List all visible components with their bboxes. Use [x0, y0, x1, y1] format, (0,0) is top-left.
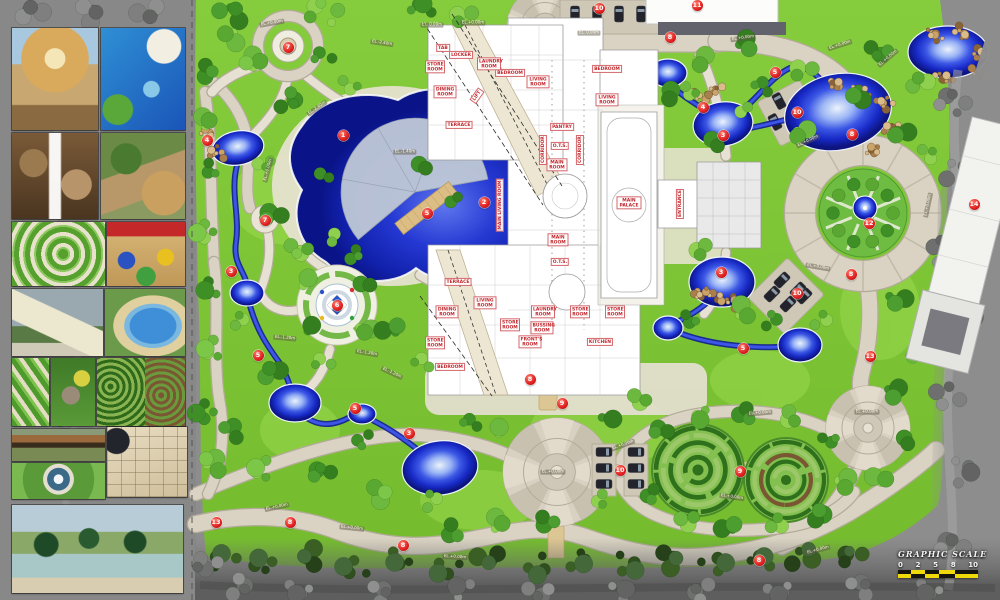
master-plan-canvas: 1233334455555677888888899101010101112131…: [0, 0, 1000, 600]
reference-photo-lawn-rings: [12, 358, 49, 426]
reference-photo-fountain: [12, 463, 105, 499]
reference-photo-rock-garden: [51, 358, 95, 426]
north-building: [646, 0, 778, 24]
graphic-scale-tick: 0: [898, 561, 903, 569]
reference-photo-lagoon-pool: [105, 289, 185, 356]
graphic-scale-ticks: 025810: [898, 561, 978, 569]
graphic-scale-tick: 5: [933, 561, 938, 569]
reference-photo-spiral-lawn: [12, 222, 105, 286]
reference-photo-hedge-maze: [97, 358, 185, 426]
reference-photo-gazebo: [12, 28, 98, 130]
reference-photo-palm-resort: [12, 505, 183, 593]
reference-photo-bridge: [12, 429, 105, 461]
graphic-scale-title: GRAPHIC SCALE: [898, 549, 992, 559]
reference-photo-playground: [107, 222, 185, 286]
graphic-scale-tick: 2: [916, 561, 921, 569]
graphic-scale: GRAPHIC SCALE 025810: [898, 549, 992, 578]
reference-photo-paving: [107, 427, 187, 497]
reference-photo-shade-sail: [12, 289, 103, 356]
reference-photo-waterfall: [12, 133, 98, 219]
reference-photo-stream: [101, 133, 185, 219]
graphic-scale-tick: 10: [968, 561, 978, 569]
graphic-scale-bar: [898, 570, 978, 578]
graphic-scale-tick: 8: [951, 561, 956, 569]
reference-photo-pool-slide: [101, 28, 185, 130]
